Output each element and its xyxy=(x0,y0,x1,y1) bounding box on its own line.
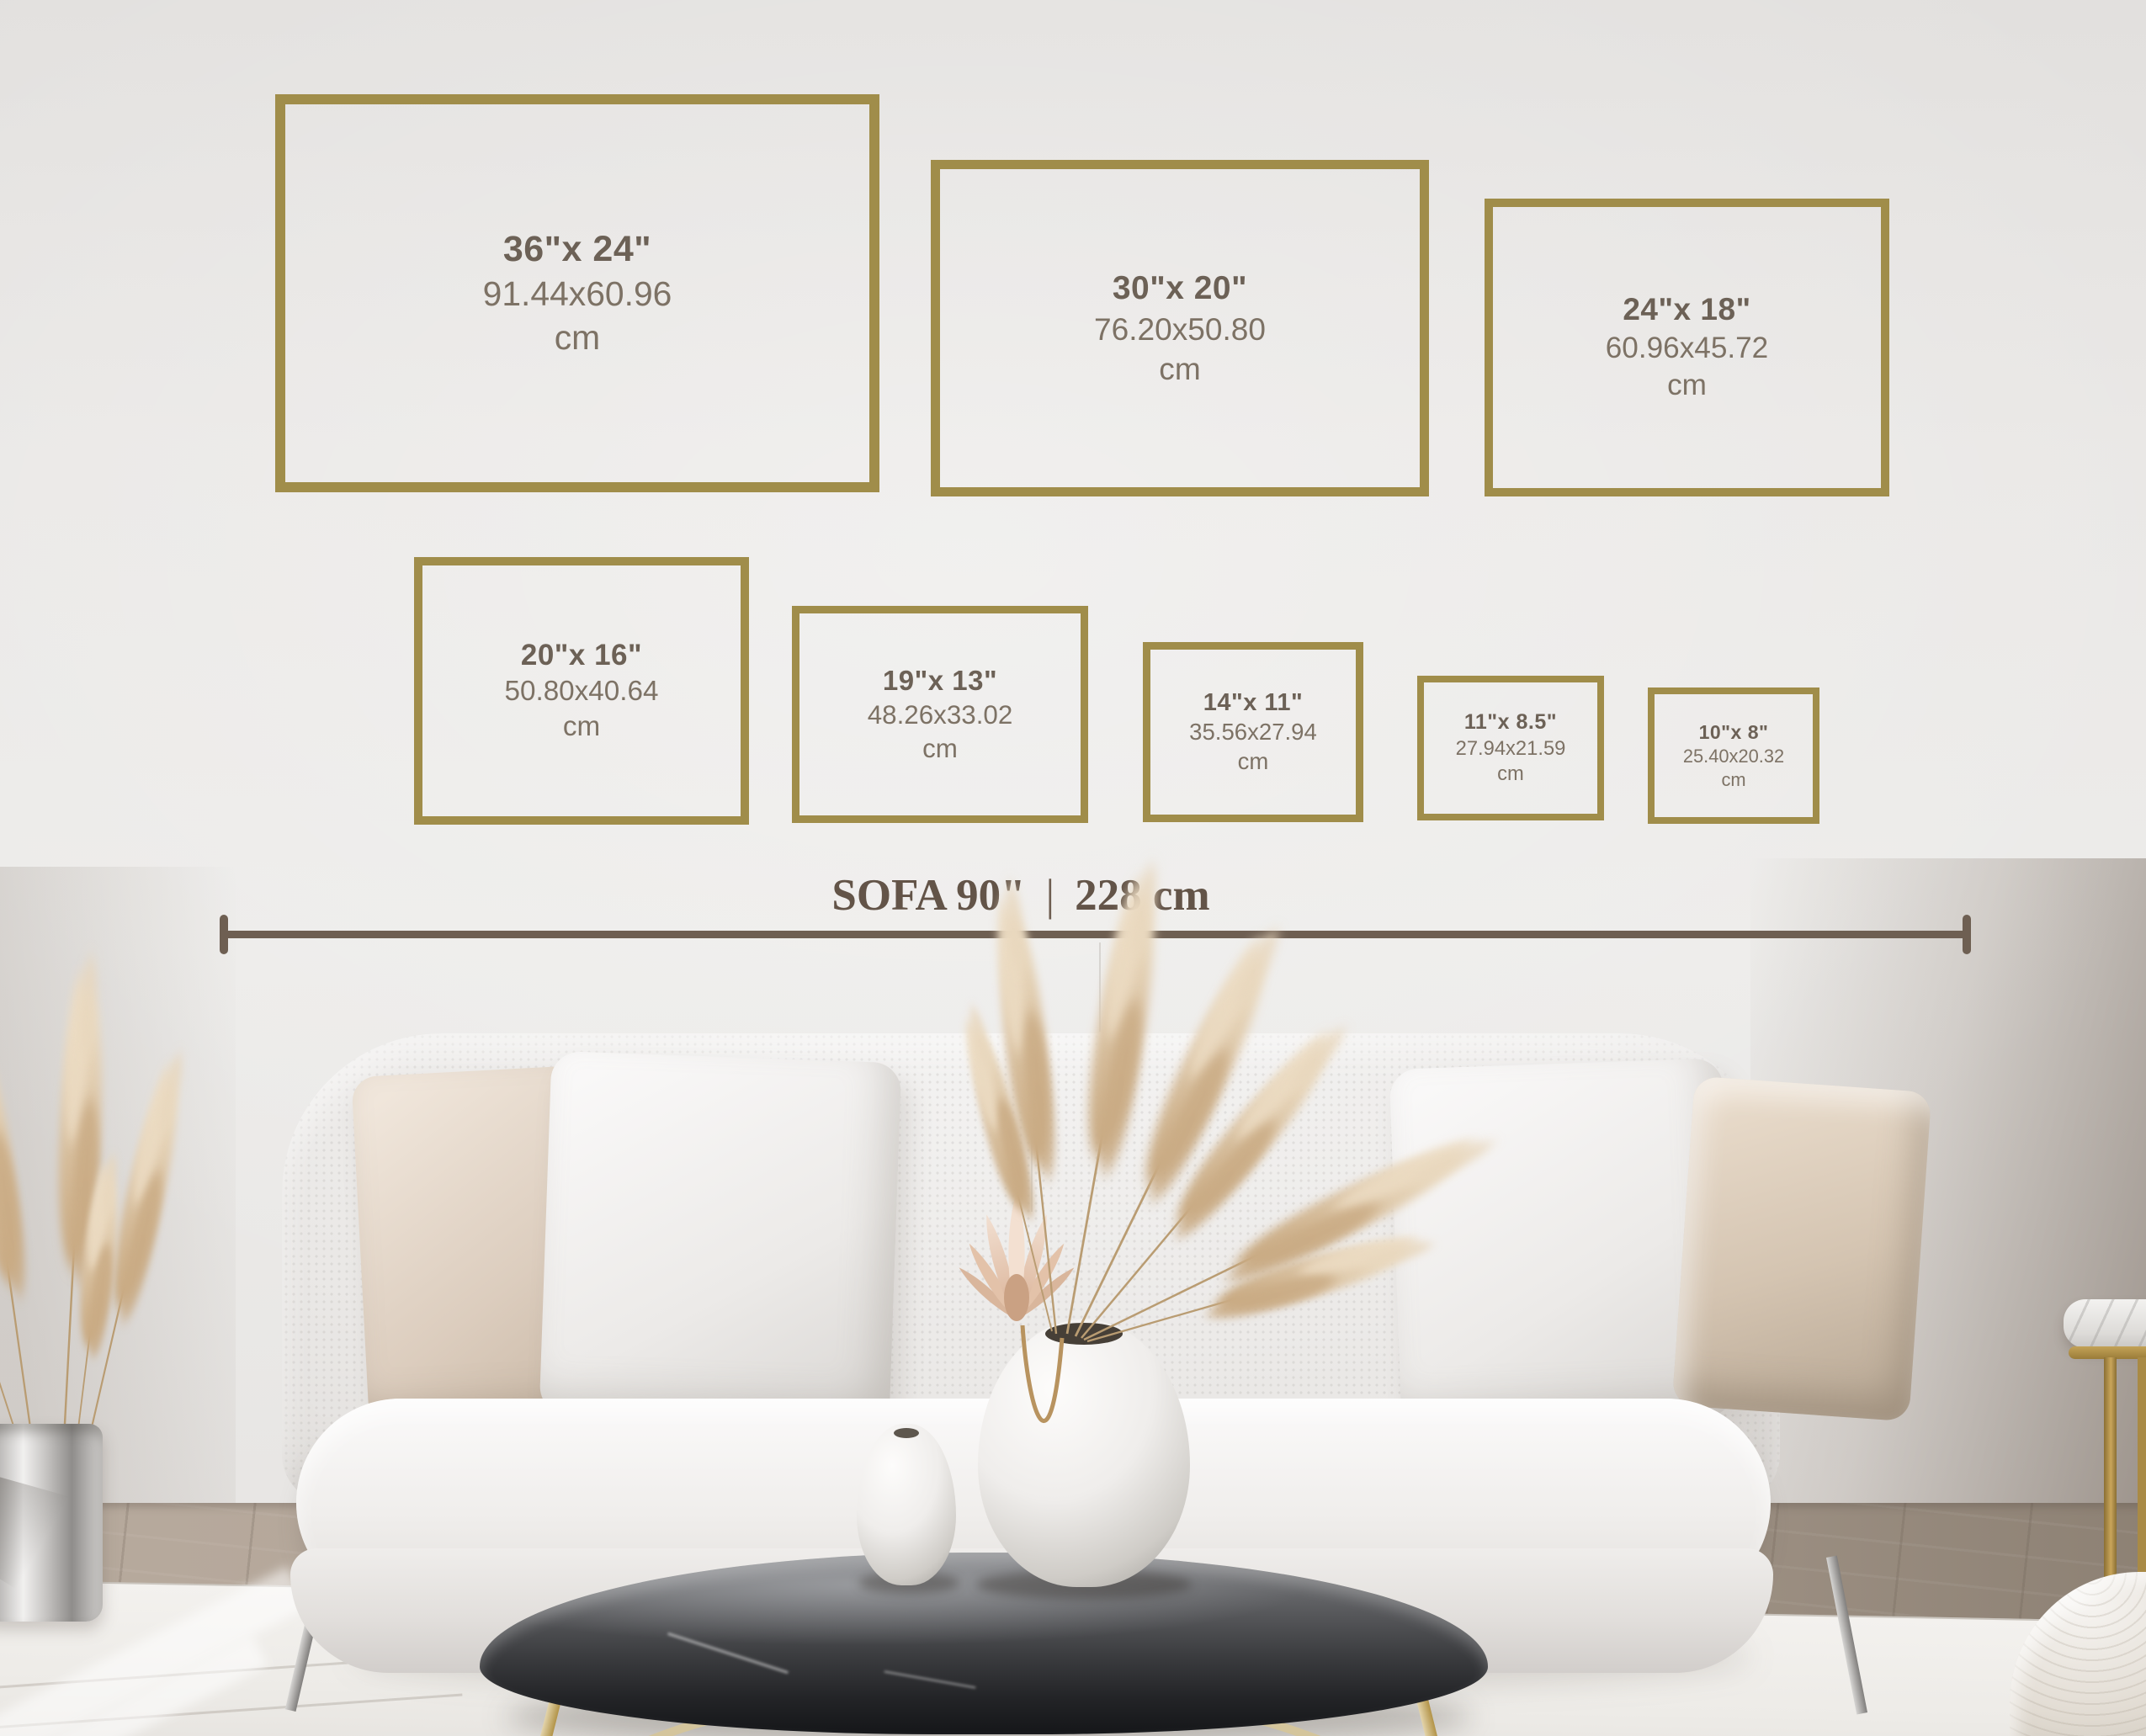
frame-size-cm: 48.26x33.02 xyxy=(868,698,1013,732)
frame-size-cm: 27.94x21.59 xyxy=(1456,736,1566,762)
size-frame-10x8: 10"x 8" 25.40x20.32 cm xyxy=(1648,687,1819,824)
sofa-measure-imperial: SOFA 90" xyxy=(831,871,1025,920)
size-frame-19x13: 19"x 13" 48.26x33.02 cm xyxy=(792,606,1088,823)
frame-label: 24"x 18" 60.96x45.72 cm xyxy=(1606,290,1768,405)
frame-size-cm: 91.44x60.96 xyxy=(483,273,672,316)
frame-size-inches: 10"x 8" xyxy=(1683,720,1784,745)
frame-size-unit: cm xyxy=(1094,349,1266,389)
frame-label: 36"x 24" 91.44x60.96 cm xyxy=(483,226,672,359)
frame-label: 11"x 8.5" 27.94x21.59 cm xyxy=(1456,709,1566,787)
frame-size-unit: cm xyxy=(1189,747,1317,777)
frame-label: 20"x 16" 50.80x40.64 cm xyxy=(504,637,658,746)
frame-size-cm: 25.40x20.32 xyxy=(1683,745,1784,768)
frame-size-cm: 60.96x45.72 xyxy=(1606,330,1768,368)
frame-size-cm: 76.20x50.80 xyxy=(1094,310,1266,349)
frame-size-inches: 30"x 20" xyxy=(1094,268,1266,310)
frame-label: 10"x 8" 25.40x20.32 cm xyxy=(1683,720,1784,792)
sofa-measure-line xyxy=(221,931,1969,938)
frame-size-unit: cm xyxy=(1456,762,1566,787)
frame-label: 30"x 20" 76.20x50.80 cm xyxy=(1094,268,1266,389)
side-table-top xyxy=(2064,1299,2146,1348)
frame-size-cm: 50.80x40.64 xyxy=(504,674,658,709)
frame-size-unit: cm xyxy=(504,709,658,745)
frame-label: 19"x 13" 48.26x33.02 cm xyxy=(868,663,1013,766)
size-frame-24x18: 24"x 18" 60.96x45.72 cm xyxy=(1485,199,1889,496)
frame-size-inches: 14"x 11" xyxy=(1189,687,1317,719)
pillow-beige-right xyxy=(1672,1076,1932,1422)
frame-size-cm: 35.56x27.94 xyxy=(1189,718,1317,747)
frame-size-unit: cm xyxy=(1683,768,1784,792)
size-frame-14x11: 14"x 11" 35.56x27.94 cm xyxy=(1143,642,1363,822)
size-frame-11x8.5: 11"x 8.5" 27.94x21.59 cm xyxy=(1417,676,1604,820)
frame-size-unit: cm xyxy=(1606,367,1768,405)
frame-size-inches: 36"x 24" xyxy=(483,226,672,273)
size-frame-36x24: 36"x 24" 91.44x60.96 cm xyxy=(275,94,879,492)
size-frame-20x16: 20"x 16" 50.80x40.64 cm xyxy=(414,557,749,825)
frame-label: 14"x 11" 35.56x27.94 cm xyxy=(1189,687,1317,778)
frame-size-inches: 24"x 18" xyxy=(1606,290,1768,330)
living-room-frame-size-guide: 36"x 24" 91.44x60.96 cm 30"x 20" 76.20x5… xyxy=(0,0,2146,1736)
pillow-white-left xyxy=(539,1051,902,1426)
sofa-measure-divider: | xyxy=(1026,871,1076,920)
wall-shadow-left xyxy=(0,867,236,1506)
frame-size-inches: 11"x 8.5" xyxy=(1456,709,1566,736)
glass-planter xyxy=(0,1424,103,1622)
sofa-measure-metric: 228 cm xyxy=(1075,871,1209,920)
size-frame-30x20: 30"x 20" 76.20x50.80 cm xyxy=(931,160,1429,496)
sofa-measure-label: SOFA 90"|228 cm xyxy=(221,870,1820,921)
frame-size-inches: 20"x 16" xyxy=(504,637,658,674)
frame-size-unit: cm xyxy=(483,316,672,360)
frame-size-unit: cm xyxy=(868,732,1013,766)
frame-size-inches: 19"x 13" xyxy=(868,663,1013,698)
vase-small xyxy=(857,1424,956,1585)
wall-seam xyxy=(1099,942,1101,1032)
